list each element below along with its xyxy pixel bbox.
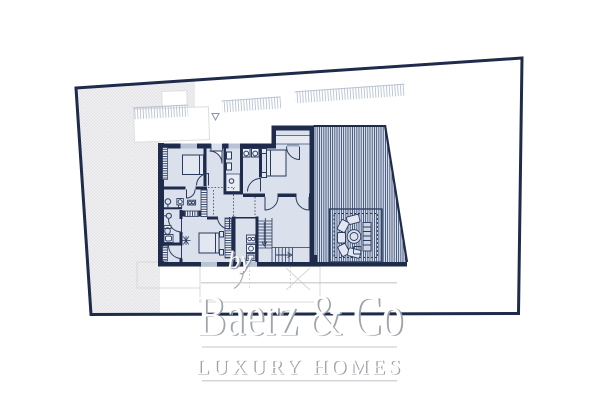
svg-text:LUXURY HOMES: LUXURY HOMES xyxy=(196,355,404,379)
svg-text:Baerz & Co: Baerz & Co xyxy=(197,283,403,348)
svg-text:by: by xyxy=(228,247,253,274)
